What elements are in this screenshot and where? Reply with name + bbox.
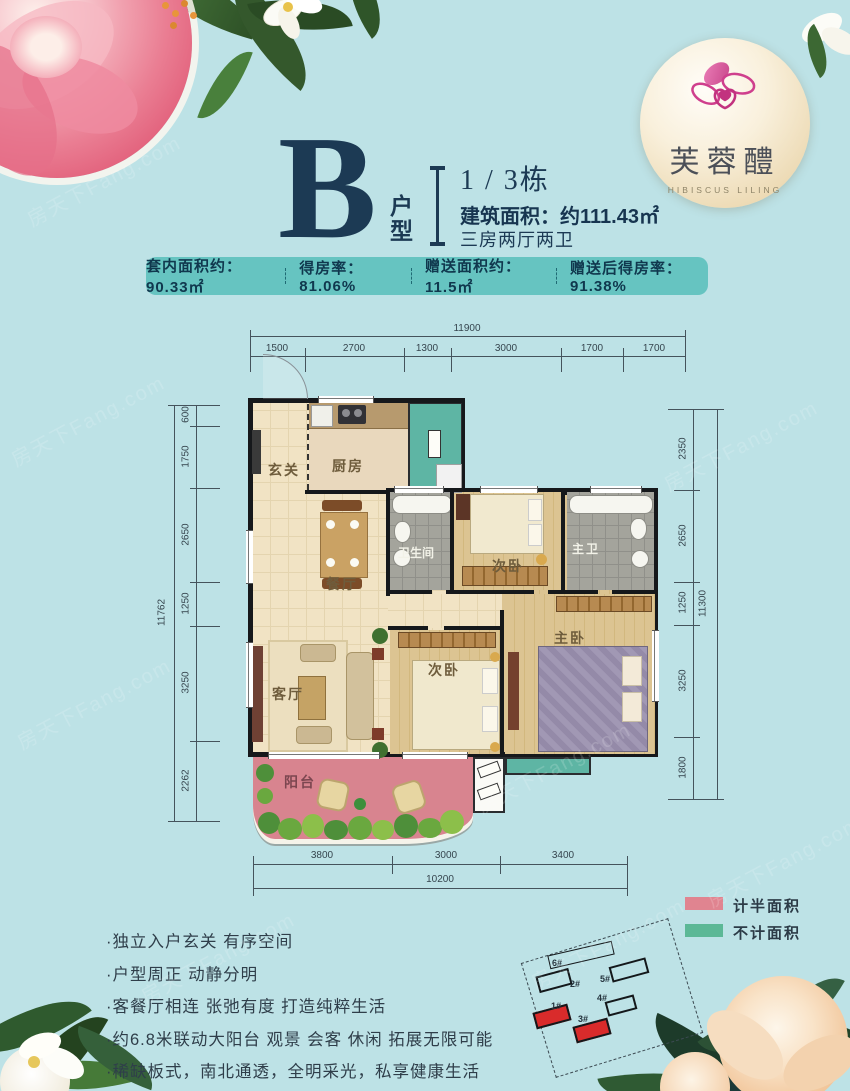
pillow <box>528 524 542 546</box>
plate <box>350 520 359 529</box>
plant <box>372 628 388 644</box>
ac-unit-marker <box>428 430 441 458</box>
wall <box>450 490 454 592</box>
dim-seg: 2262 <box>181 751 192 811</box>
window <box>652 630 659 702</box>
wall <box>500 610 504 757</box>
dim-tick <box>392 856 393 874</box>
shrub <box>348 816 372 840</box>
window <box>318 396 374 403</box>
dim-seg: 1700 <box>562 343 622 354</box>
berry <box>162 2 169 9</box>
dim-tick <box>668 799 724 800</box>
lamp <box>490 652 500 662</box>
room-label-balcony: 阳台 <box>284 772 316 792</box>
chair <box>322 500 362 511</box>
dim-seg: 1250 <box>181 574 192 634</box>
lamp <box>536 554 547 565</box>
dim-tick <box>627 856 628 896</box>
feature-item: ·稀缺板式，南北通透，全明采光，私享健康生活 <box>106 1056 493 1089</box>
armchair <box>300 644 336 662</box>
plate <box>326 558 335 567</box>
lamp <box>490 742 500 752</box>
built-area-line: 建筑面积：约111.43㎡ <box>460 200 659 229</box>
floorplan-poster: 房天下Fang.com 房天下Fang.com 房天下Fang.com 房天下F… <box>0 0 850 1091</box>
stove-burner <box>354 409 362 417</box>
wardrobe <box>398 632 496 648</box>
shrub <box>394 814 418 838</box>
shrub <box>372 820 394 840</box>
dim-tick <box>190 626 220 627</box>
toilet <box>630 518 647 540</box>
banner-item: 套内面积约：90.33㎡ <box>146 255 272 297</box>
shrub <box>278 818 302 840</box>
rose-center <box>10 16 82 78</box>
dim-tick <box>190 582 220 583</box>
dim-tick <box>668 409 724 410</box>
window <box>480 486 538 493</box>
dim-tick <box>500 856 501 874</box>
area-info-banner: 套内面积约：90.33㎡ 得房率：81.06% 赠送面积约：11.5㎡ 赠送后得… <box>146 257 708 295</box>
sink <box>631 550 649 568</box>
plate <box>326 520 335 529</box>
plant <box>354 798 366 810</box>
dim-total-top: 11900 <box>437 323 497 334</box>
dim-line <box>250 356 685 357</box>
room-label-kitchen: 厨房 <box>332 456 364 476</box>
wall <box>388 626 428 630</box>
room-label-bath: 卫生间 <box>398 544 434 561</box>
watermark: 房天下Fang.com <box>11 650 176 756</box>
pillow <box>482 668 498 694</box>
shrub <box>302 814 324 838</box>
dim-seg: 3000 <box>416 850 476 861</box>
plate <box>350 558 359 567</box>
dim-tick <box>253 856 254 896</box>
dim-seg: 2700 <box>324 343 384 354</box>
balcony-slider <box>268 752 380 759</box>
berry <box>172 10 179 17</box>
unit-label-char-1: 户 <box>390 194 413 219</box>
tv-cabinet <box>252 646 263 742</box>
pillow <box>482 706 498 732</box>
banner-item: 赠送后得房率：91.38% <box>570 257 708 295</box>
brand-logo: 芙蓉醴 HIBISCUS LILING <box>640 38 810 208</box>
banner-item: 得房率：81.06% <box>299 257 398 295</box>
dim-total-left: 11762 <box>157 583 168 643</box>
dim-line <box>174 405 175 821</box>
window <box>246 642 253 708</box>
window <box>394 486 444 493</box>
white-flower-center <box>283 2 293 12</box>
room-label-bedroom-a: 次卧 <box>492 556 524 576</box>
banner-divider <box>285 268 286 284</box>
wall <box>386 488 390 596</box>
dim-line <box>196 405 197 821</box>
site-building-label: 5# <box>600 974 610 984</box>
desk <box>456 494 471 520</box>
logo-name: 芙蓉醴 <box>640 137 810 181</box>
banner-divider <box>411 268 412 284</box>
shrub <box>324 820 348 840</box>
stove-burner <box>342 409 350 417</box>
dresser <box>508 652 519 730</box>
dim-tick <box>190 426 220 427</box>
wall <box>612 590 658 594</box>
room-label-master-bedroom: 主卧 <box>554 628 586 648</box>
site-building-label: 4# <box>597 993 607 1003</box>
room-label-dining: 餐厅 <box>326 574 358 594</box>
wall <box>408 403 410 490</box>
armchair <box>296 726 332 744</box>
shoe-cabinet <box>252 430 261 474</box>
berry <box>170 22 177 29</box>
shrub <box>440 810 464 834</box>
title-divider <box>436 168 439 244</box>
room-label-master-bath: 主卫 <box>572 540 600 557</box>
dim-tick <box>190 741 220 742</box>
kitchen-sink <box>311 405 333 427</box>
logo-subtitle: HIBISCUS LILING <box>640 185 810 195</box>
pillow <box>622 656 642 686</box>
dim-seg: 1500 <box>247 343 307 354</box>
room-label-bedroom-b: 次卧 <box>428 660 460 680</box>
wardrobe <box>556 596 652 612</box>
watermark: 房天下Fang.com <box>5 367 170 473</box>
sofa <box>346 652 374 740</box>
dim-tick <box>168 821 220 822</box>
dim-seg: 3000 <box>476 343 536 354</box>
legend-label-excluded: 不计面积 <box>733 922 801 943</box>
building-number: 1 / 3栋 <box>460 158 550 198</box>
feature-list: ·独立入户玄关 有序空间 ·户型周正 动静分明 ·客餐厅相连 张弛有度 打造纯粹… <box>106 926 493 1089</box>
wall <box>305 490 390 494</box>
wall <box>561 490 565 592</box>
leaf <box>197 42 253 127</box>
unit-label: 户 型 <box>390 194 413 244</box>
window <box>246 530 253 584</box>
dim-seg: 1250 <box>678 573 689 633</box>
site-building-label: 3# <box>578 1014 588 1024</box>
dim-tick <box>168 405 220 406</box>
pillow <box>622 692 642 722</box>
room-label-entry: 玄关 <box>268 460 300 480</box>
berry <box>190 12 197 19</box>
side-table <box>372 728 384 740</box>
toilet <box>394 521 411 543</box>
bathtub <box>392 495 452 514</box>
dim-seg: 3250 <box>678 651 689 711</box>
unit-label-char-2: 型 <box>390 219 413 244</box>
dim-seg: 2650 <box>678 506 689 566</box>
dim-tick <box>190 488 220 489</box>
dim-seg: 2650 <box>181 505 192 565</box>
wall <box>446 590 534 594</box>
dim-seg: 1300 <box>397 343 457 354</box>
dim-seg: 1750 <box>181 427 192 487</box>
title-divider-cap <box>430 166 445 170</box>
room-label-living: 客厅 <box>272 684 304 704</box>
shrub <box>258 812 280 834</box>
kitchen-sliding-door <box>307 404 309 490</box>
title-divider-cap <box>430 242 445 246</box>
dim-seg: 3400 <box>533 850 593 861</box>
hibiscus-flower-icon <box>683 50 767 130</box>
feature-item: ·约6.8米联动大阳台 观景 会客 休闲 拓展无限可能 <box>106 1024 493 1057</box>
bathtub <box>569 495 653 514</box>
shrub <box>418 818 442 838</box>
wall <box>388 590 432 594</box>
dim-seg: 1700 <box>624 343 684 354</box>
unit-letter: B <box>278 114 377 262</box>
banner-divider <box>556 268 557 284</box>
layout-line: 三房两厅两卫 <box>460 226 574 252</box>
window <box>590 486 642 493</box>
white-flower-center <box>28 1056 40 1068</box>
wall <box>444 626 502 630</box>
pillow <box>528 499 542 521</box>
corridor-floor <box>388 594 502 628</box>
dim-seg: 1800 <box>678 738 689 798</box>
shrub <box>256 764 274 782</box>
feature-item: ·独立入户玄关 有序空间 <box>106 926 493 959</box>
site-building-label: 2# <box>570 979 580 989</box>
wall <box>548 590 598 594</box>
banner-item: 赠送面积约：11.5㎡ <box>425 255 543 297</box>
berry <box>181 0 188 7</box>
dim-total-bottom: 10200 <box>410 874 470 885</box>
dim-tick <box>685 330 686 372</box>
dim-line <box>250 336 685 337</box>
dim-seg: 3250 <box>181 653 192 713</box>
dim-seg: 3800 <box>292 850 352 861</box>
dim-line <box>253 888 627 889</box>
site-building-label: 1# <box>551 1001 561 1011</box>
dim-line <box>253 864 627 865</box>
window <box>402 752 468 759</box>
side-table <box>372 648 384 660</box>
shrub <box>257 788 273 804</box>
